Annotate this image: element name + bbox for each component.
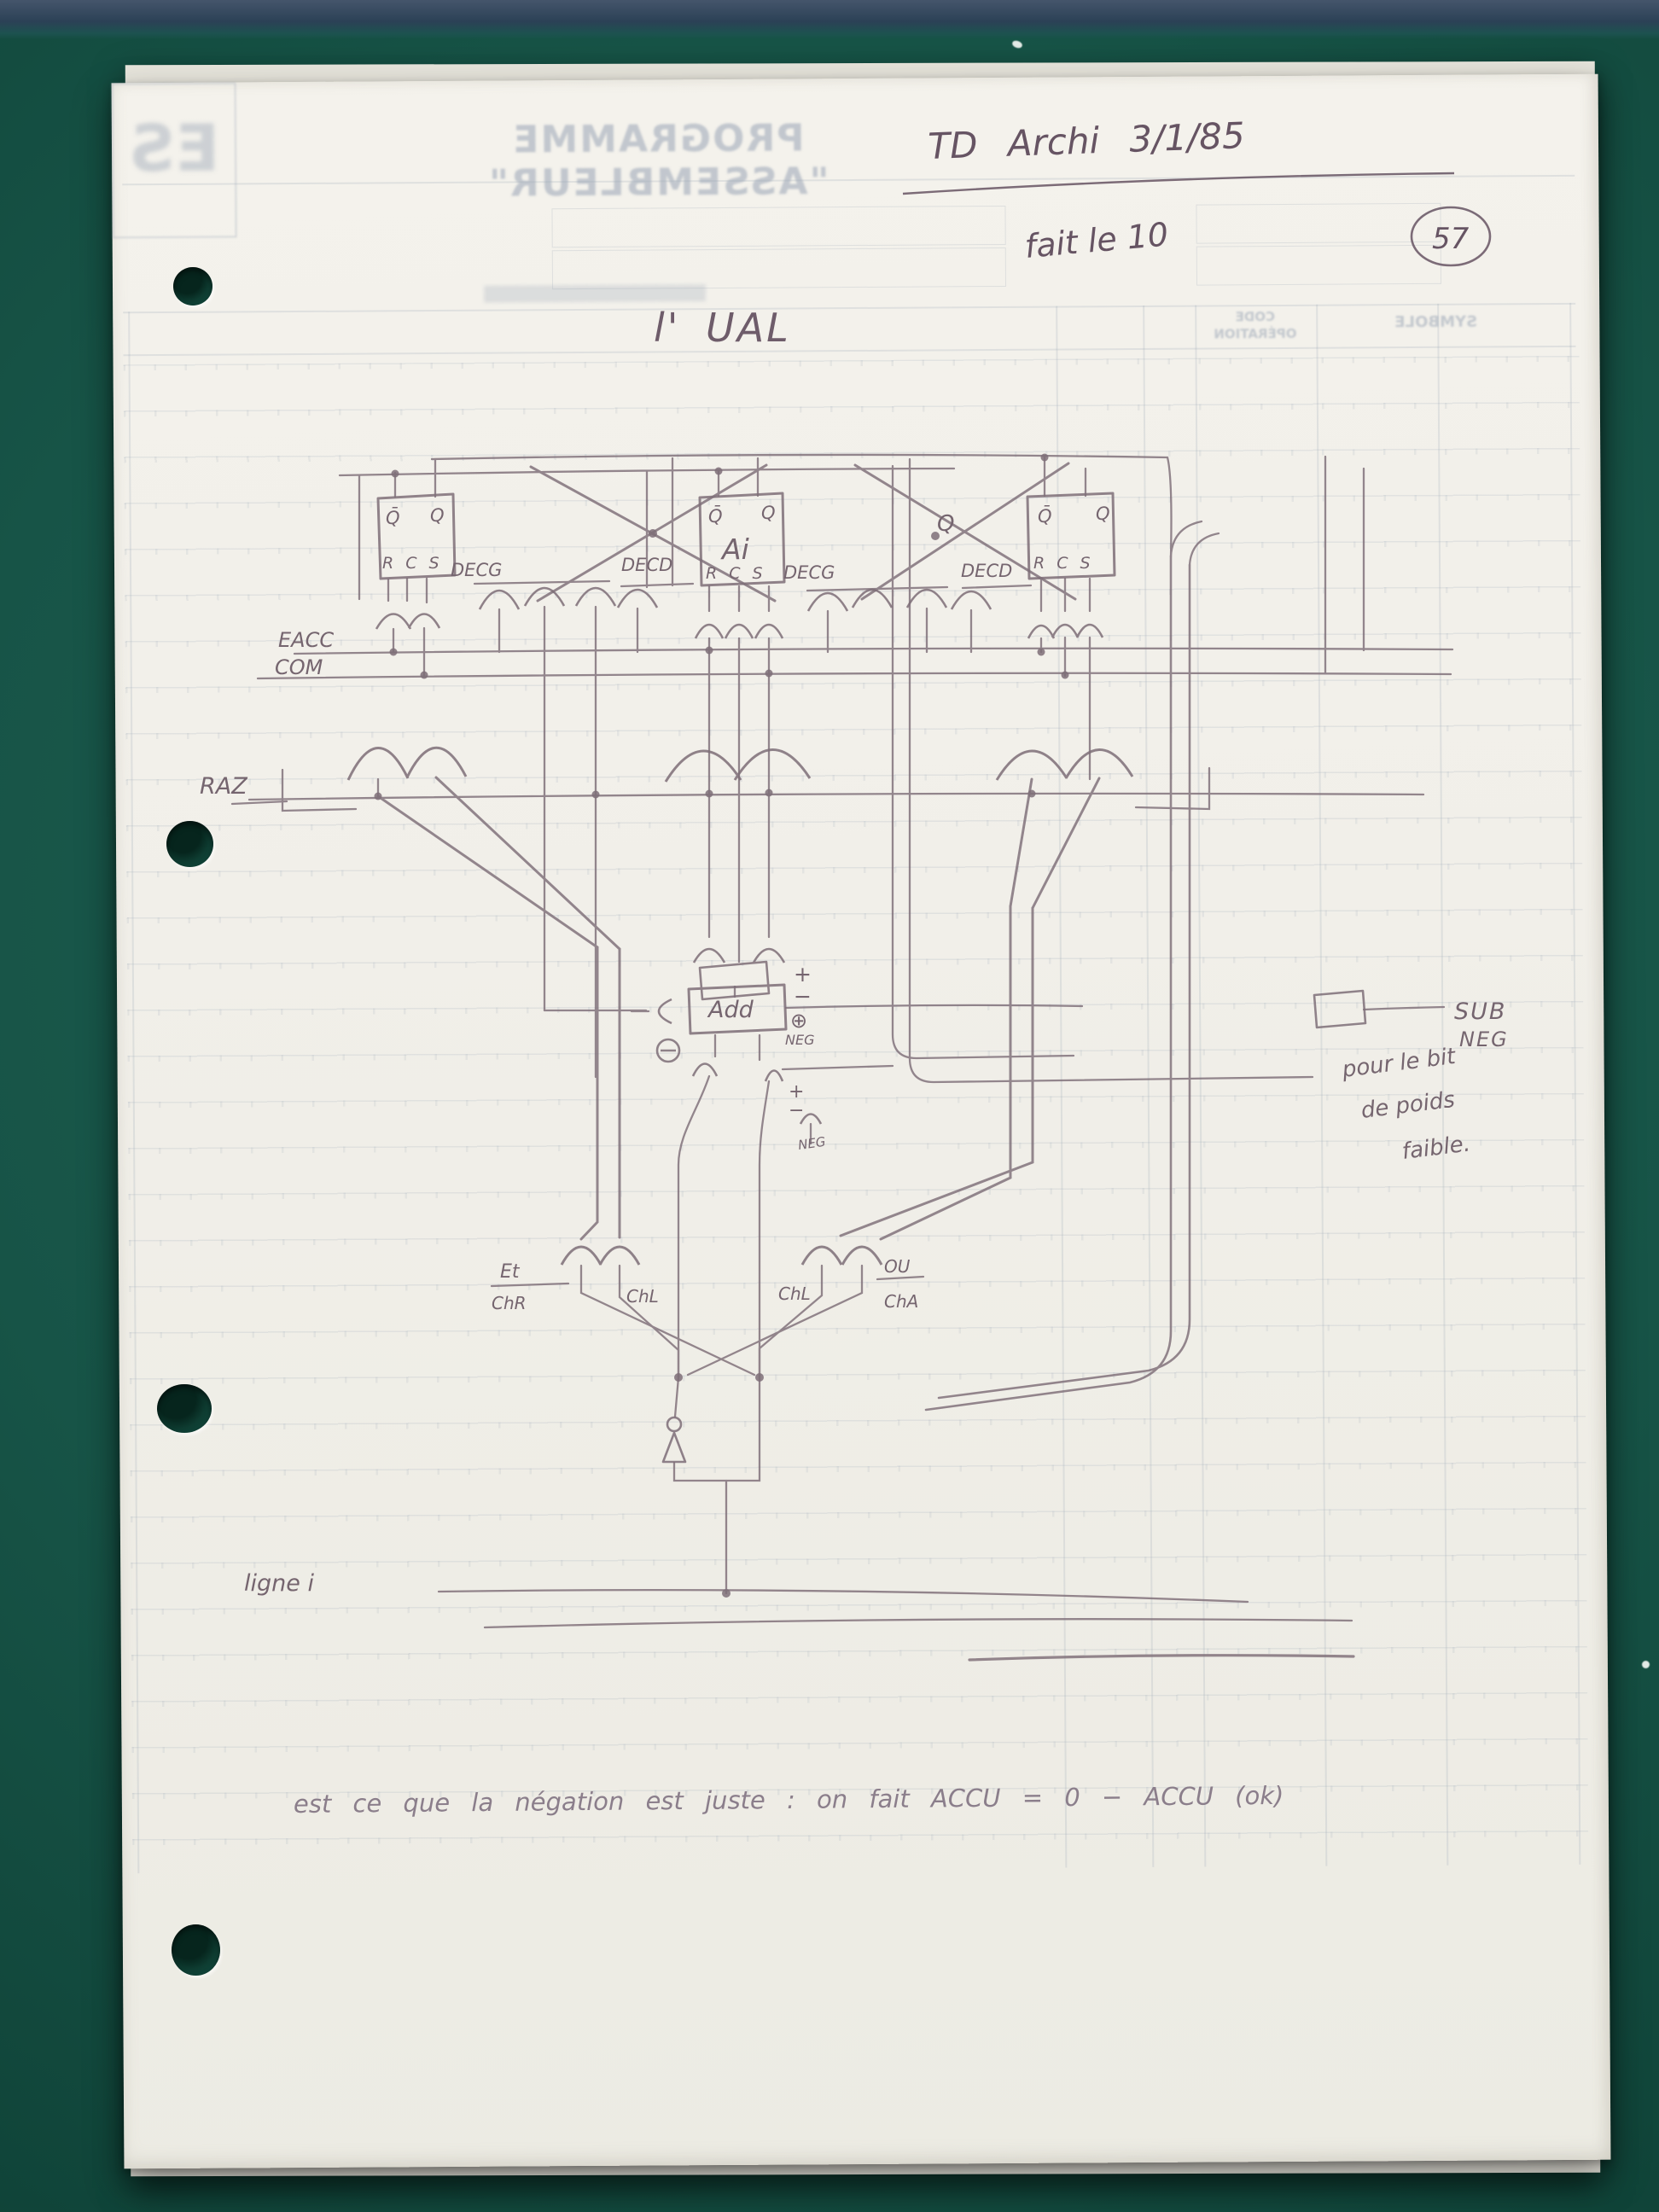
- showthrough-form-title: PROGRAMME "ASSEMBLEUR": [346, 115, 970, 206]
- table-edge-shadow: [0, 0, 1659, 39]
- showthrough-col-symbole: SYMBOLE: [1359, 313, 1512, 331]
- showthrough-logo-box: ES: [112, 82, 237, 238]
- showthrough-col-code: CODEOPÉRATION: [1195, 308, 1316, 343]
- showthrough-grid-ticks: [124, 356, 1589, 1873]
- showthrough-cell: [551, 206, 1005, 247]
- showthrough-line: [123, 346, 1575, 356]
- punch-hole: [173, 267, 212, 306]
- showthrough-line: [123, 303, 1575, 313]
- showthrough-cell: [552, 247, 1006, 289]
- paper-sheet: PROGRAMME "ASSEMBLEUR" ES CODEOPÉRATION …: [112, 74, 1611, 2169]
- showthrough-logo-text: ES: [114, 109, 236, 186]
- dust-speck: [1642, 1661, 1650, 1668]
- dust-speck: [1011, 39, 1023, 49]
- showthrough-cell: [1196, 203, 1441, 244]
- showthrough-cell: [1196, 245, 1441, 286]
- punch-hole: [166, 821, 213, 867]
- photo-of-notebook-page: PROGRAMME "ASSEMBLEUR" ES CODEOPÉRATION …: [0, 0, 1659, 2212]
- punch-hole: [172, 1924, 220, 1976]
- showthrough-faint-text-bar: [484, 284, 706, 303]
- punch-hole: [157, 1384, 212, 1433]
